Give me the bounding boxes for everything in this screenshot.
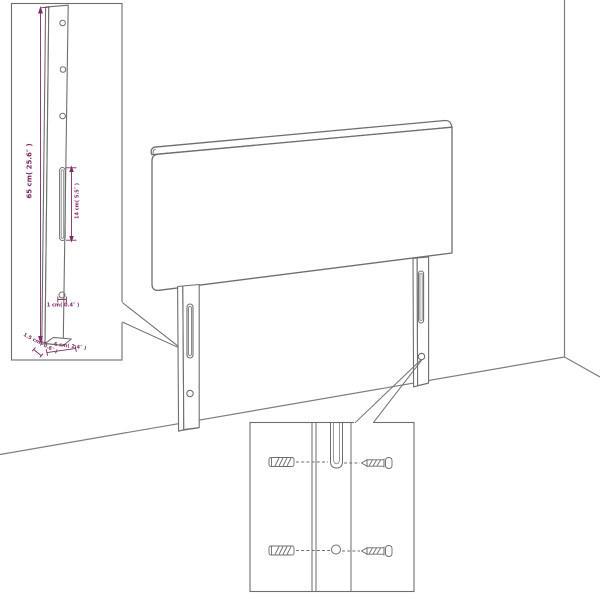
mounting-inset-frame xyxy=(250,423,414,592)
left-leg xyxy=(178,285,200,432)
floor-line-right xyxy=(565,357,600,377)
dim-label-hole: 1 cm( 0.4″ ) xyxy=(47,304,80,309)
left-leg-front-face xyxy=(183,285,199,430)
mounting-detail-inset xyxy=(250,423,414,592)
headboard xyxy=(151,120,452,290)
left-callout-line-a xyxy=(122,303,177,346)
dim-label-slot: 14 cm( 5.5″ ) xyxy=(76,183,81,219)
headboard-front-face xyxy=(152,127,452,290)
assembly-diagram: 65 cm( 25.6″ ) 14 cm( 5.5″ ) 1 cm( 0.4″ … xyxy=(0,0,600,600)
left-callout-lines xyxy=(122,302,178,348)
left-callout-line-b xyxy=(122,322,178,348)
dim-label-height: 65 cm( 25.6″ ) xyxy=(27,143,34,198)
right-leg xyxy=(413,257,429,387)
right-callout-line-b xyxy=(373,360,422,423)
diagram-canvas xyxy=(0,0,600,600)
